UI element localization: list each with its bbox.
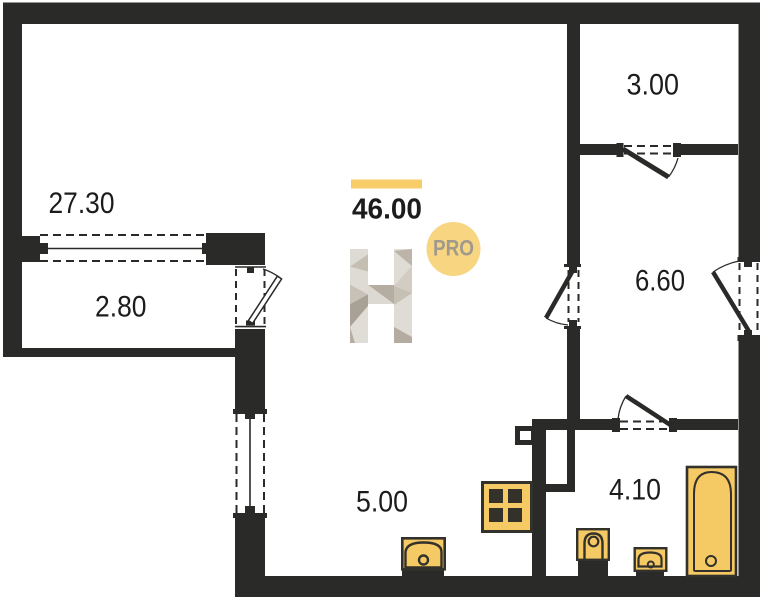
svg-text:6.60: 6.60 bbox=[635, 265, 685, 298]
svg-text:4.10: 4.10 bbox=[609, 474, 661, 507]
svg-text:46.00: 46.00 bbox=[352, 194, 422, 226]
svg-text:2.80: 2.80 bbox=[95, 291, 147, 324]
svg-text:5.00: 5.00 bbox=[356, 486, 408, 519]
svg-text:PRO: PRO bbox=[433, 235, 474, 260]
svg-text:27.30: 27.30 bbox=[49, 187, 115, 220]
svg-text:3.00: 3.00 bbox=[627, 69, 680, 102]
